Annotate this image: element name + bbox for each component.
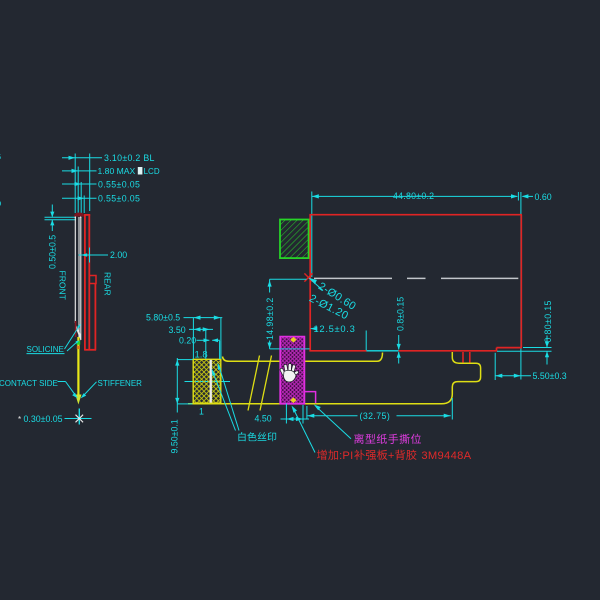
svg-text::PI: :PI bbox=[339, 450, 353, 462]
svg-text:1.80 MAX: 1.80 MAX bbox=[98, 166, 136, 176]
svg-text:REAR: REAR bbox=[103, 272, 113, 296]
svg-text:0.50±0.5: 0.50±0.5 bbox=[47, 235, 57, 269]
svg-text:0.30±0.05: 0.30±0.05 bbox=[24, 414, 63, 424]
svg-text:3M9448A: 3M9448A bbox=[421, 450, 471, 462]
svg-text:FRONT: FRONT bbox=[58, 271, 68, 300]
svg-text:0.8±0.15: 0.8±0.15 bbox=[396, 297, 406, 331]
svg-text:2.00: 2.00 bbox=[110, 250, 127, 260]
svg-text:(32.75): (32.75) bbox=[360, 411, 391, 421]
svg-text:3.50: 3.50 bbox=[169, 325, 186, 335]
svg-text:0.60: 0.60 bbox=[535, 192, 552, 202]
svg-text:5.50±0.3: 5.50±0.3 bbox=[533, 371, 567, 381]
svg-text:O: O bbox=[0, 200, 1, 209]
svg-text:CONTACT SIDE: CONTACT SIDE bbox=[0, 379, 58, 388]
svg-text:14.98±0.2: 14.98±0.2 bbox=[265, 297, 275, 340]
svg-text:G: G bbox=[0, 153, 1, 162]
svg-text:1.8: 1.8 bbox=[195, 350, 208, 361]
svg-text:0.55±0.05: 0.55±0.05 bbox=[98, 179, 140, 189]
svg-text:STIFFENER: STIFFENER bbox=[98, 379, 143, 388]
svg-text:3.10±0.2 BL: 3.10±0.2 BL bbox=[104, 153, 155, 163]
svg-text:0.20: 0.20 bbox=[179, 335, 196, 345]
svg-text:9.50±0.1: 9.50±0.1 bbox=[170, 419, 180, 453]
svg-text:+: + bbox=[388, 450, 395, 462]
svg-text:0.80±0.15: 0.80±0.15 bbox=[543, 300, 553, 342]
svg-text:1: 1 bbox=[199, 406, 204, 416]
svg-text:4.50: 4.50 bbox=[255, 413, 272, 423]
svg-text:5.80±0.5: 5.80±0.5 bbox=[146, 313, 180, 323]
svg-text:44.80±0.2: 44.80±0.2 bbox=[393, 191, 434, 201]
svg-text:0.55±0.05: 0.55±0.05 bbox=[98, 194, 140, 204]
svg-text:LCD: LCD bbox=[144, 167, 160, 176]
svg-text:*: * bbox=[18, 415, 21, 424]
svg-text:12.5±0.3: 12.5±0.3 bbox=[314, 323, 356, 334]
svg-text:SOLICINE: SOLICINE bbox=[27, 345, 64, 354]
